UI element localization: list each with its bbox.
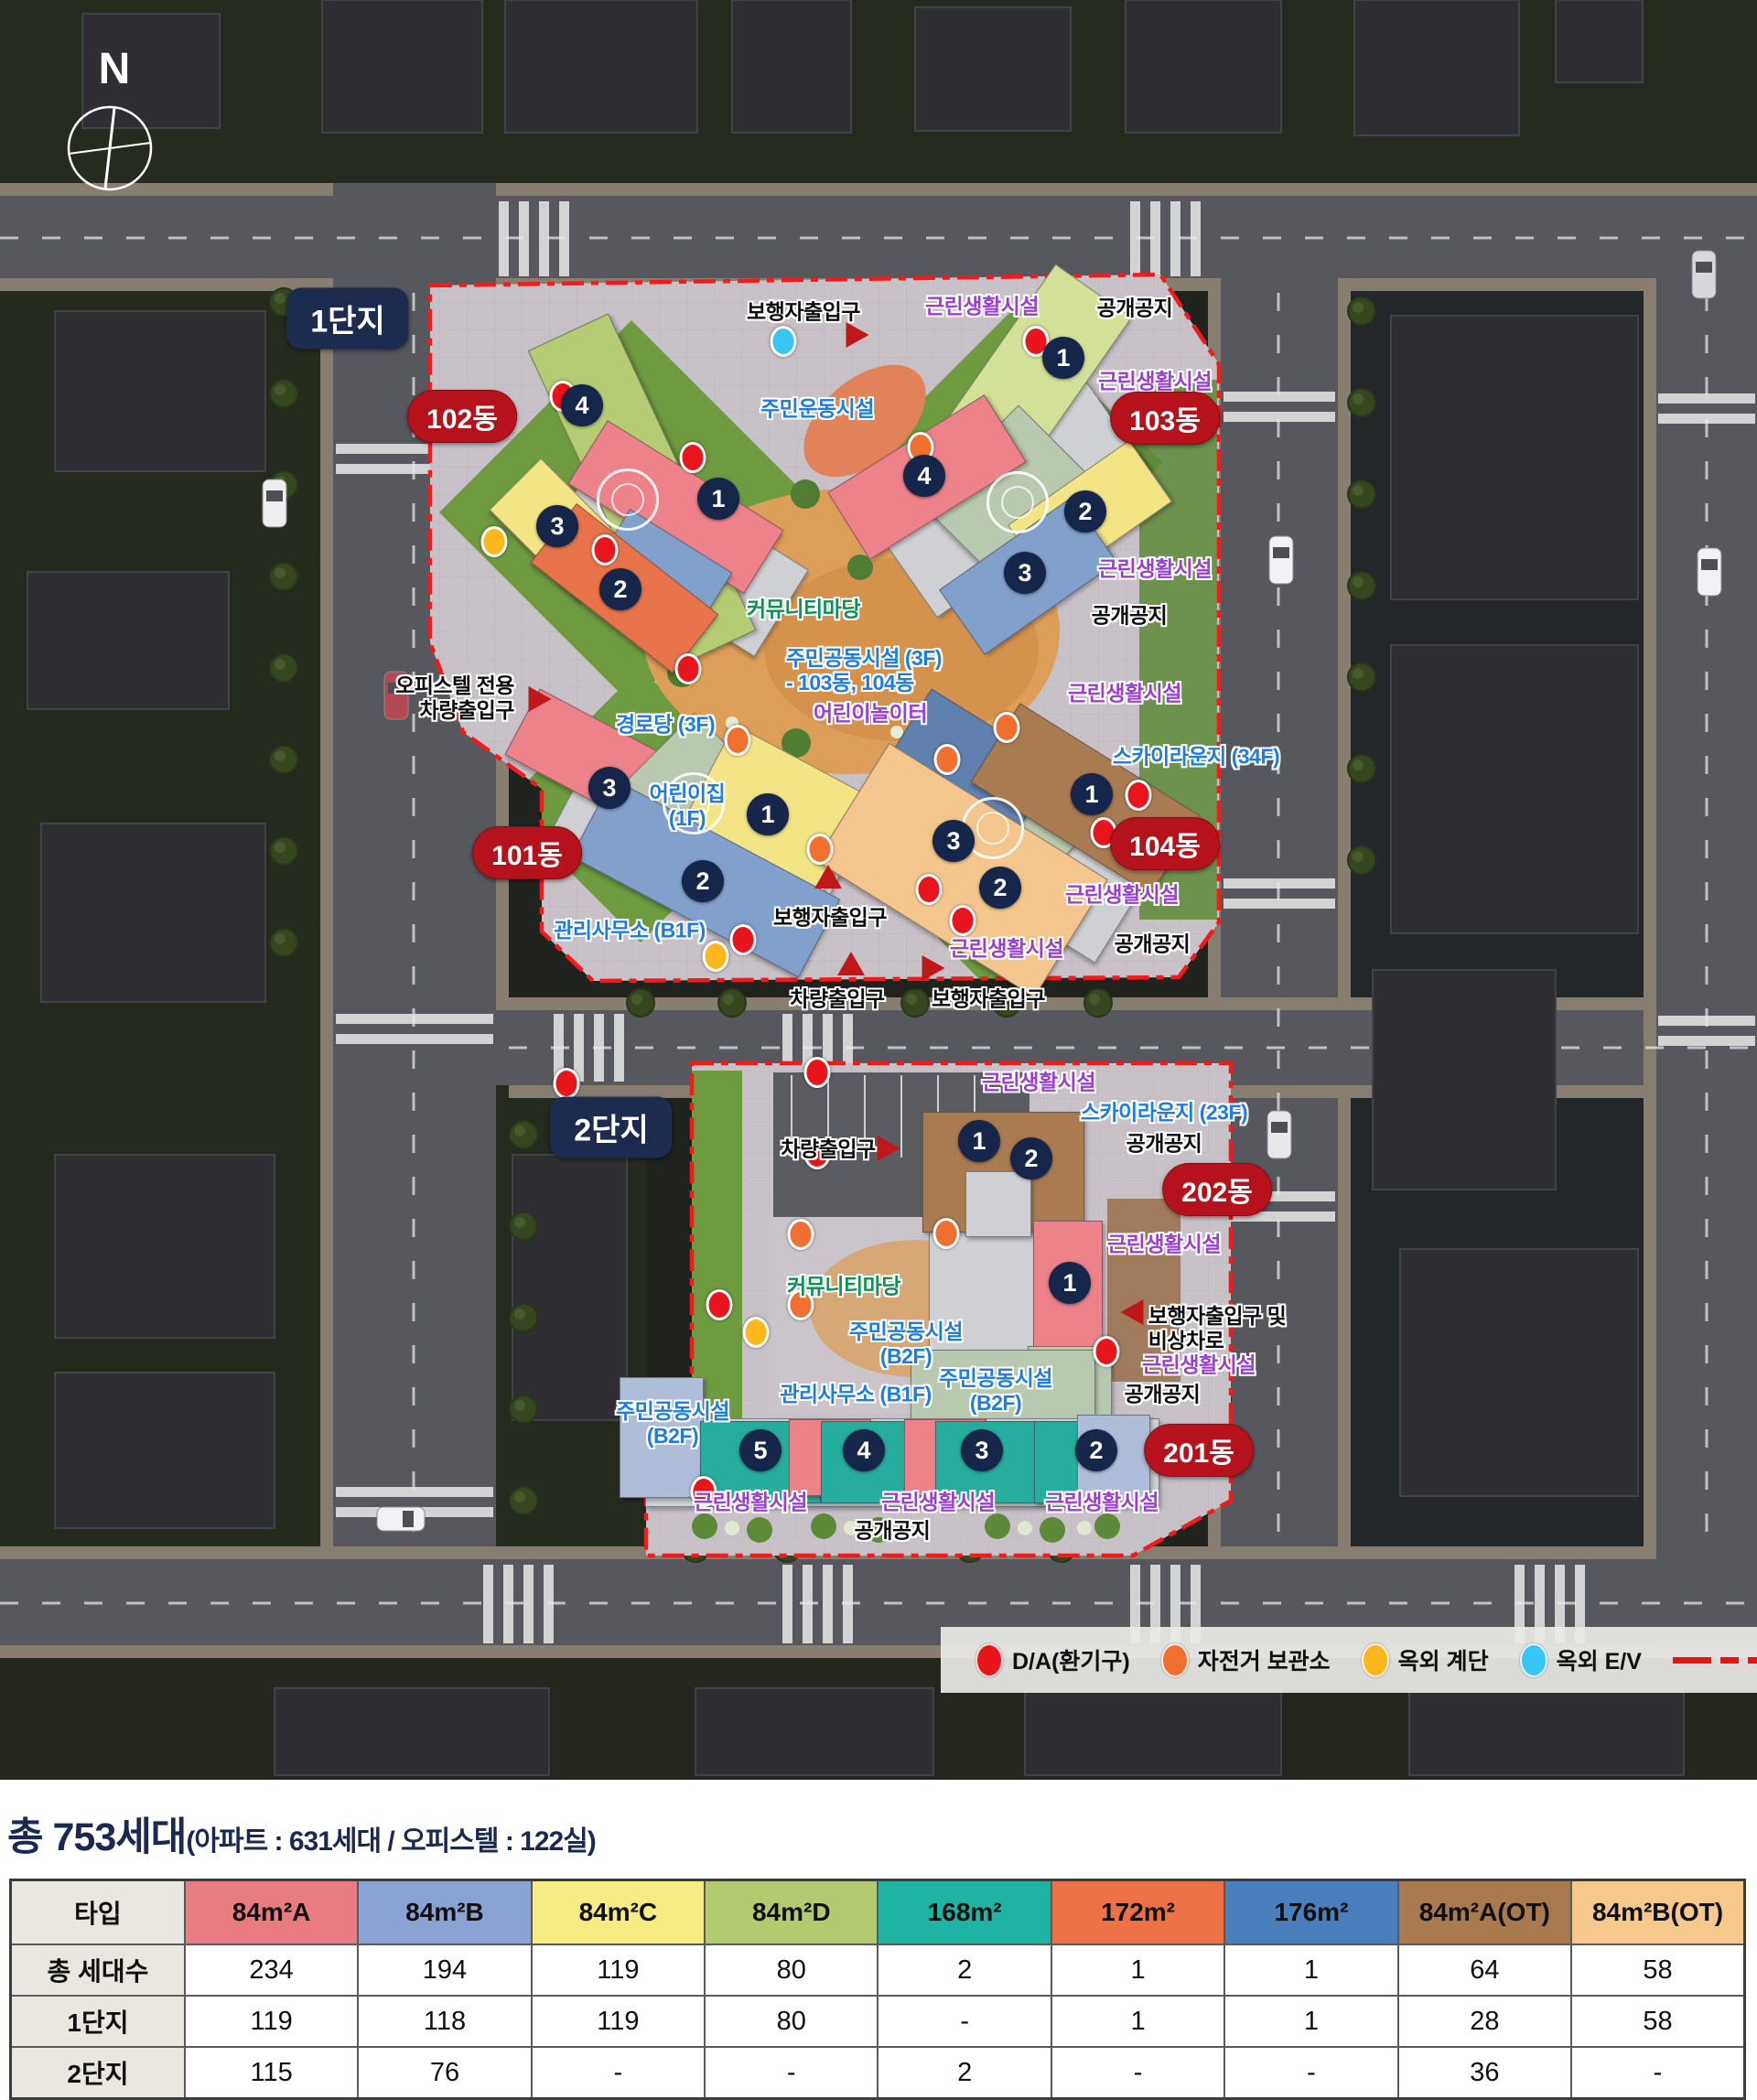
summary-title: 총 753세대(아파트 : 631세대 / 오피스텔 : 122실) xyxy=(7,1805,596,1862)
legend-marker-icon xyxy=(976,1643,1003,1677)
column-header: 168m² xyxy=(878,1880,1051,1945)
summary-section: 총 753세대(아파트 : 631세대 / 오피스텔 : 122실) 타입84m… xyxy=(0,1780,1757,2100)
legend: D/A(환기구)자전거 보관소옥외 계단옥외 E/V대지경계선 xyxy=(941,1627,1757,1693)
unit-count-cell: 115 xyxy=(185,2047,358,2099)
site-plan-map: 보행자출입구근린생활시설공개공지근린생활시설주민운동시설근린생활시설공개공지커뮤… xyxy=(0,0,1757,1780)
summary-title-total: 총 753세대 xyxy=(7,1815,186,1859)
unit-count-cell: 80 xyxy=(705,1996,878,2047)
table-row: 총 세대수234194119802116458 xyxy=(11,1944,1745,1996)
column-header: 84m²D xyxy=(705,1880,878,1945)
unit-count-cell: - xyxy=(1051,2047,1224,2099)
unit-count-cell: 234 xyxy=(185,1944,358,1996)
column-header: 172m² xyxy=(1051,1880,1224,1945)
site-plan-poster: 보행자출입구근린생활시설공개공지근린생활시설주민운동시설근린생활시설공개공지커뮤… xyxy=(0,0,1757,2100)
column-header: 84m²A xyxy=(185,1880,358,1945)
unit-count-cell: - xyxy=(532,2047,705,2099)
boundary-line-icon xyxy=(1673,1657,1757,1664)
unit-count-cell: 1 xyxy=(1051,1944,1224,1996)
unit-count-cell: 194 xyxy=(358,1944,531,1996)
row-label: 1단지 xyxy=(11,1996,185,2047)
row-label: 2단지 xyxy=(11,2047,185,2099)
legend-item: 옥외 E/V xyxy=(1520,1643,1642,1677)
legend-marker-icon xyxy=(1520,1643,1547,1677)
row-label: 총 세대수 xyxy=(11,1944,185,1996)
column-header: 176m² xyxy=(1224,1880,1397,1945)
unit-count-cell: 118 xyxy=(358,1996,531,2047)
column-header: 84m²B(OT) xyxy=(1571,1880,1744,1945)
unit-count-cell: 1 xyxy=(1051,1996,1224,2047)
legend-marker-icon xyxy=(1362,1643,1389,1677)
legend-item: 옥외 계단 xyxy=(1362,1643,1489,1677)
legend-item-label: 자전거 보관소 xyxy=(1198,1643,1331,1676)
column-header: 84m²C xyxy=(532,1880,705,1945)
legend-item-label: 옥외 E/V xyxy=(1557,1643,1642,1676)
unit-count-cell: 28 xyxy=(1398,1996,1571,2047)
unit-count-cell: 1 xyxy=(1224,1944,1397,1996)
unit-count-cell: 58 xyxy=(1571,1996,1744,2047)
unit-count-cell: 64 xyxy=(1398,1944,1571,1996)
summary-title-detail: (아파트 : 631세대 / 오피스텔 : 122실) xyxy=(186,1826,595,1857)
unit-count-cell: 119 xyxy=(532,1944,705,1996)
unit-count-cell: - xyxy=(1571,2047,1744,2099)
unit-count-cell: - xyxy=(878,1996,1051,2047)
unit-count-cell: 58 xyxy=(1571,1944,1744,1996)
column-header: 84m²B xyxy=(358,1880,531,1945)
legend-marker-icon xyxy=(1161,1643,1189,1677)
legend-item: 대지경계선 xyxy=(1673,1643,1757,1676)
column-header: 84m²A(OT) xyxy=(1398,1880,1571,1945)
legend-item-label: D/A(환기구) xyxy=(1012,1643,1130,1676)
unit-count-cell: - xyxy=(705,2047,878,2099)
unit-count-cell: 36 xyxy=(1398,2047,1571,2099)
unit-count-cell: - xyxy=(1224,2047,1397,2099)
unit-count-cell: 80 xyxy=(705,1944,878,1996)
unit-count-cell: 76 xyxy=(358,2047,531,2099)
legend-item: 자전거 보관소 xyxy=(1161,1643,1331,1677)
compass-north-label: N xyxy=(99,44,131,94)
table-row: 1단지11911811980-112858 xyxy=(11,1996,1745,2047)
aerial-ground-art xyxy=(0,0,1757,1780)
compass-rose-icon xyxy=(55,92,174,210)
unit-count-cell: 1 xyxy=(1224,1996,1397,2047)
unit-count-cell: 119 xyxy=(532,1996,705,2047)
unit-count-cell: 119 xyxy=(185,1996,358,2047)
legend-item: D/A(환기구) xyxy=(976,1643,1130,1677)
unit-count-cell: 2 xyxy=(878,2047,1051,2099)
column-header: 타입 xyxy=(11,1880,185,1945)
legend-item-label: 옥외 계단 xyxy=(1398,1643,1489,1676)
compass: N xyxy=(55,44,174,209)
unit-type-table: 타입84m²A84m²B84m²C84m²D168m²172m²176m²84m… xyxy=(9,1879,1746,2100)
unit-count-cell: 2 xyxy=(878,1944,1051,1996)
table-row: 2단지11576--2--36- xyxy=(11,2047,1745,2099)
